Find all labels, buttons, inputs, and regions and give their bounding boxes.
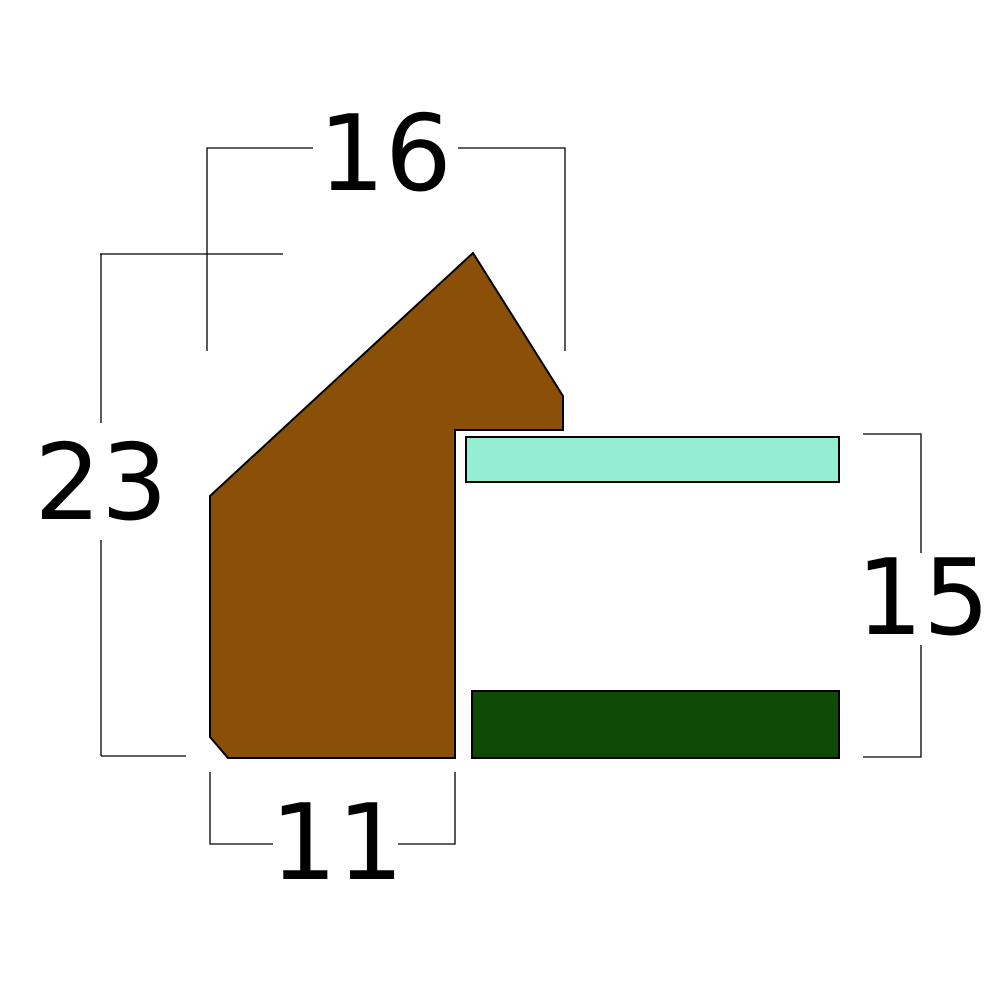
dim-height-right-label: 15 <box>856 537 990 659</box>
backing-strip-shape <box>472 691 839 758</box>
glass-strip-shape <box>466 437 839 482</box>
profile-drawing-canvas: 16 23 11 15 <box>0 0 1000 1000</box>
dim-width-top-label: 16 <box>318 93 452 215</box>
dim-width-bottom-label: 11 <box>270 782 404 904</box>
dim-height-left-label: 23 <box>34 422 168 544</box>
moulding-profile-shape <box>210 253 563 758</box>
profile-drawing: 16 23 11 15 <box>0 0 1000 1000</box>
